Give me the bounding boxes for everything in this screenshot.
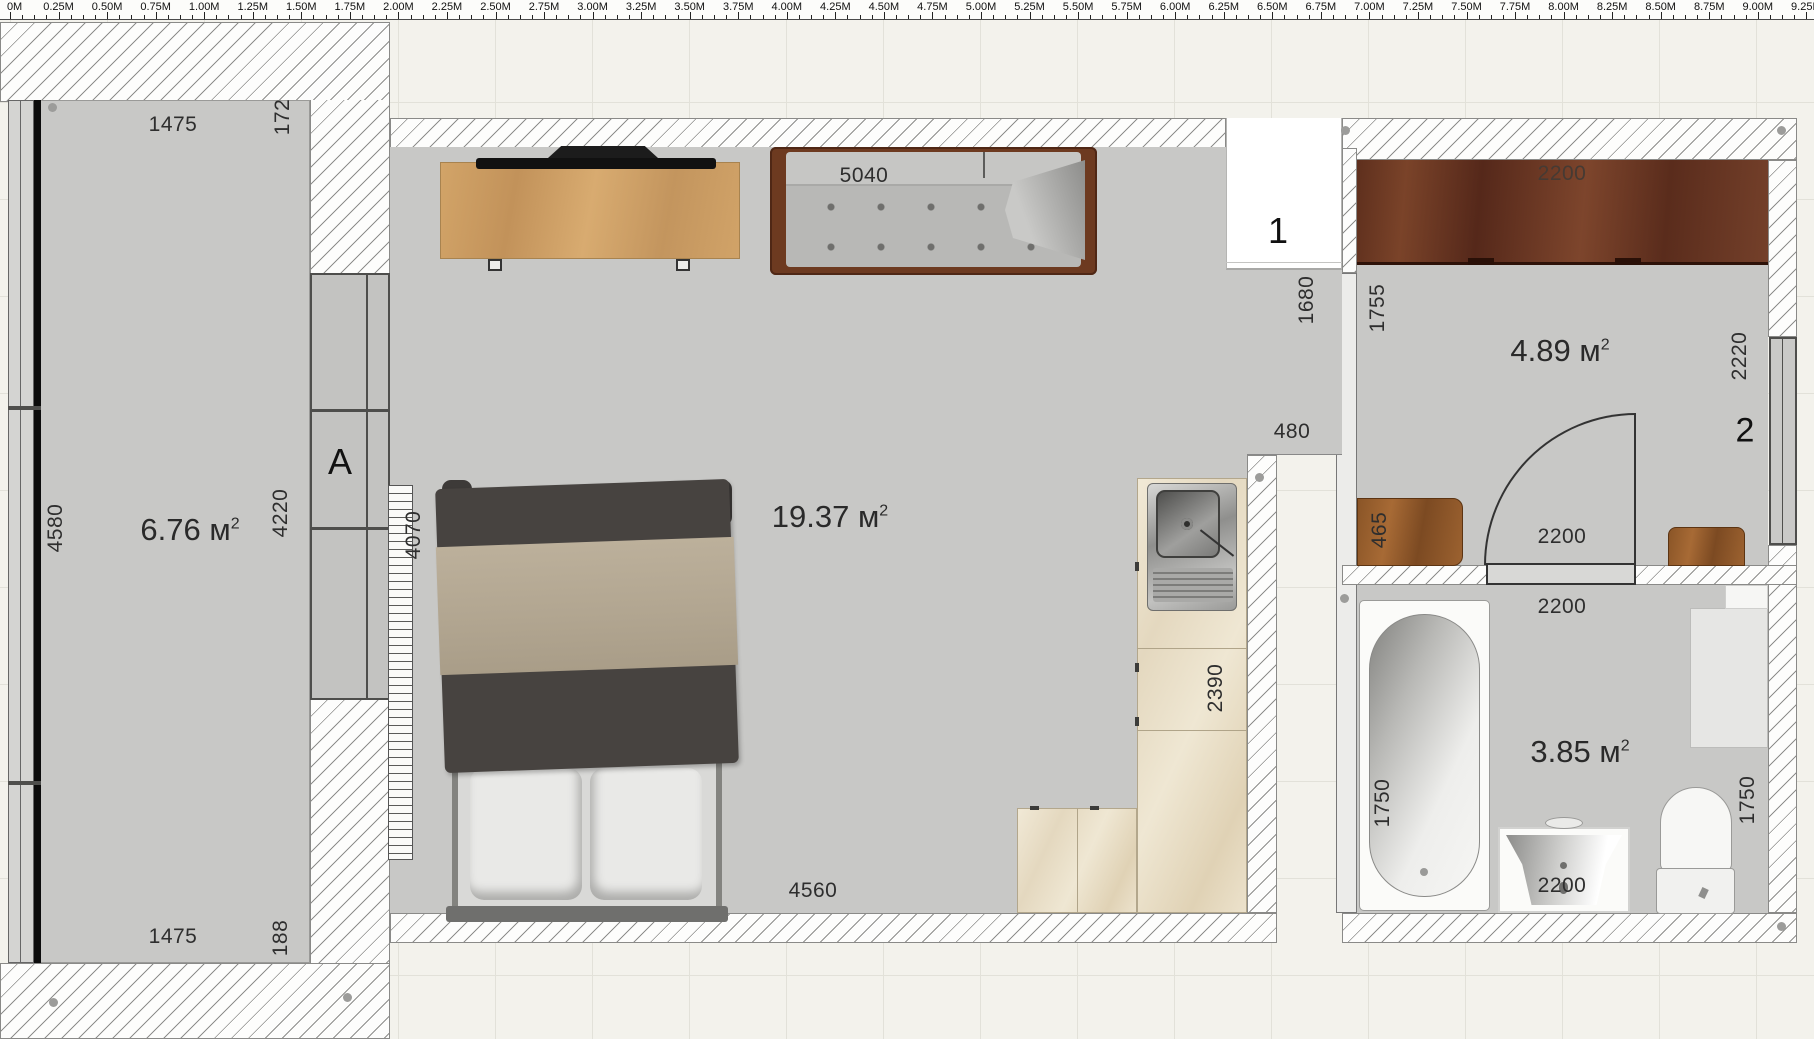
ruler-tick-major (10, 12, 11, 19)
ruler-tick-minor (131, 15, 132, 19)
kitchen-counter-seam (1137, 648, 1247, 649)
ruler-tick-minor (750, 15, 751, 19)
bed-throw (436, 537, 738, 675)
ruler-tick-major (59, 12, 60, 19)
wall-bottom-bath (1342, 913, 1797, 943)
ruler-tick-minor (71, 15, 72, 19)
wall-entry-side (1342, 148, 1357, 273)
ruler-tick-minor (1248, 15, 1249, 19)
ruler-tick-minor (629, 15, 630, 19)
ruler-tick-minor (1054, 15, 1055, 19)
dim-balcony-bottom-right: 188 (269, 920, 293, 957)
bathtub-drain (1420, 868, 1428, 876)
ruler-tick-minor (1042, 15, 1043, 19)
ruler-tick-major (1127, 12, 1128, 19)
ruler-tick-major (1612, 12, 1613, 19)
ruler-tick-minor (556, 15, 557, 19)
ruler-tick-minor (811, 15, 812, 19)
ruler-tick-major (884, 12, 885, 19)
bed[interactable] (438, 476, 738, 926)
ruler-tick-major (1369, 12, 1370, 19)
ruler-tick-major (1272, 12, 1273, 19)
ruler-tick-minor (775, 15, 776, 19)
wall-top-living (390, 118, 1226, 148)
ruler-tick-minor (277, 15, 278, 19)
kitchen-counter-seam (1077, 808, 1078, 913)
ruler-tick-minor (969, 15, 970, 19)
ruler-tick-minor (1115, 15, 1116, 19)
kitchen-counter-seam (1137, 730, 1247, 731)
ruler-tick-minor (1746, 15, 1747, 19)
dim-passage: 480 (1274, 420, 1311, 444)
entry-door-threshold-line (1226, 262, 1342, 263)
ruler-tick-minor (1539, 15, 1540, 19)
ruler-tick-minor (228, 15, 229, 19)
ruler-tick-minor (423, 15, 424, 19)
ruler-tick-minor (1236, 15, 1237, 19)
hall-door-leaf[interactable] (1634, 413, 1636, 566)
toilet-bowl[interactable] (1660, 787, 1732, 872)
ruler-tick-minor (313, 15, 314, 19)
ruler-tick-minor (763, 15, 764, 19)
ruler-tick-major (1709, 12, 1710, 19)
ruler-tick-minor (799, 15, 800, 19)
sofa-back-seam (983, 152, 985, 178)
dim-living-bottom: 4560 (789, 879, 838, 903)
cabinet-handle (1135, 562, 1139, 571)
ruler-tick-minor (180, 15, 181, 19)
ruler-tick-minor (1199, 15, 1200, 19)
ruler-tick-minor (83, 15, 84, 19)
wall-top-hall (1342, 118, 1797, 160)
balcony-window-sill-line (20, 100, 21, 963)
ruler-tick-minor (945, 15, 946, 19)
ruler-tick-minor (678, 15, 679, 19)
bathtub-basin (1369, 614, 1480, 897)
ruler-tick-minor (1673, 15, 1674, 19)
ruler-tick-minor (702, 15, 703, 19)
ruler-tick-minor (714, 15, 715, 19)
ruler-tick-minor (920, 15, 921, 19)
dim-balcony-top-right: 172 (271, 99, 295, 136)
ruler-tick-minor (1406, 15, 1407, 19)
ruler-tick-minor (1697, 15, 1698, 19)
ruler-tick-major (447, 12, 448, 19)
dim-entry-depth: 1680 (1295, 276, 1319, 325)
ruler-tick-minor (1442, 15, 1443, 19)
wall-right-upper (1768, 160, 1797, 337)
ruler-tick-minor (1721, 15, 1722, 19)
ruler-tick-major (1418, 12, 1419, 19)
ruler-tick-minor (1734, 15, 1735, 19)
ruler-tick-minor (726, 15, 727, 19)
door-marker-1: 1 (1268, 210, 1288, 252)
ruler-tick-minor (1163, 15, 1164, 19)
dim-radiator: 4070 (402, 511, 426, 560)
balcony-window-divider (8, 781, 41, 785)
ruler-tick-minor (872, 15, 873, 19)
bed-pillow (470, 768, 582, 900)
sink-drain (1181, 518, 1193, 530)
node-dot[interactable] (1255, 473, 1264, 482)
ruler-tick-minor (908, 15, 909, 19)
ruler-tick-minor (483, 15, 484, 19)
cabinet-handle (1030, 806, 1039, 810)
ruler-tick-major (1078, 12, 1079, 19)
wall-balcony-right (310, 100, 390, 275)
dim-washbasin: 2200 (1538, 874, 1587, 898)
sink-drainboard (1153, 568, 1233, 602)
window-column-mullion (366, 275, 368, 698)
ruler-tick-minor (34, 15, 35, 19)
hall-window-mullion (1782, 339, 1783, 543)
ruler-tick-minor (1576, 15, 1577, 19)
ruler-tick-major (301, 12, 302, 19)
window-marker-2: 2 (1736, 412, 1755, 451)
ruler-tick-minor (22, 15, 23, 19)
ruler-tick-minor (411, 15, 412, 19)
ruler-tick-minor (289, 15, 290, 19)
ruler-tick-minor (1357, 15, 1358, 19)
ruler-tick-minor (1102, 15, 1103, 19)
cabinet-handle (1135, 663, 1139, 672)
balcony-window-glass (34, 100, 41, 963)
ruler-tick-major (1224, 12, 1225, 19)
shower-step (1725, 585, 1768, 609)
node-dot[interactable] (343, 993, 352, 1002)
ruler-tick-minor (1636, 15, 1637, 19)
ruler-tick-minor (95, 15, 96, 19)
ruler-tick-major (835, 12, 836, 19)
node-dot[interactable] (48, 103, 57, 112)
ruler-tick-minor (1260, 15, 1261, 19)
ruler-tick-minor (896, 15, 897, 19)
ruler-tick-minor (1794, 15, 1795, 19)
window-marker-A: A (328, 441, 352, 483)
bed-pillow (590, 768, 702, 900)
balcony-window-sill[interactable] (8, 100, 34, 963)
window-column-divider (311, 409, 389, 412)
tv-stand[interactable] (440, 162, 740, 259)
ruler-tick-major (107, 12, 108, 19)
ruler-tick-major (1661, 12, 1662, 19)
ruler-tick-major (544, 12, 545, 19)
ruler-tick-major (787, 12, 788, 19)
dim-toilet-side: 1750 (1736, 776, 1760, 825)
ruler-tick-minor (1588, 15, 1589, 19)
ruler-tick-minor (508, 15, 509, 19)
ruler-tick-minor (459, 15, 460, 19)
shower-unit[interactable] (1690, 608, 1768, 748)
wardrobe-handle (1615, 258, 1641, 265)
ruler-tick-minor (532, 15, 533, 19)
ruler-tick-minor (362, 15, 363, 19)
ruler-tick-major (1564, 12, 1565, 19)
ruler-tick-minor (144, 15, 145, 19)
ruler-tick-major (204, 12, 205, 19)
ruler-tick-minor (192, 15, 193, 19)
tv-mount (548, 146, 658, 158)
washbasin-faucet (1545, 817, 1583, 829)
dim-hall-left: 1755 (1366, 284, 1390, 333)
ruler-tick-minor (1551, 15, 1552, 19)
ruler-tick-minor (265, 15, 266, 19)
ruler-tick-major (738, 12, 739, 19)
ruler-tick-major (1806, 12, 1807, 19)
ruler-tick-major (156, 12, 157, 19)
wardrobe-handle (1468, 258, 1494, 265)
node-dot[interactable] (1777, 922, 1786, 931)
cabinet-handle (1135, 717, 1139, 726)
ruler-tick-minor (847, 15, 848, 19)
ruler-label: 9.25M (1791, 1, 1814, 13)
ruler-tick-minor (168, 15, 169, 19)
ruler-tick-minor (1284, 15, 1285, 19)
ruler-tick-minor (1212, 15, 1213, 19)
ruler-tick-minor (1624, 15, 1625, 19)
hall-window[interactable] (1769, 337, 1797, 545)
ruler-tick-major (1175, 12, 1176, 19)
window-column-divider (311, 527, 389, 530)
living-area-label: 19.37 м2 (772, 499, 888, 535)
dim-bathtub: 1750 (1371, 779, 1395, 828)
dim-balcony-top: 1475 (149, 113, 198, 137)
window-column-A[interactable] (310, 273, 390, 700)
ruler-tick-minor (1527, 15, 1528, 19)
ruler-tick-minor (1187, 15, 1188, 19)
ruler-tick-major (932, 12, 933, 19)
ruler-tick-minor (617, 15, 618, 19)
ruler-tick-minor (1090, 15, 1091, 19)
ruler-tick-minor (1309, 15, 1310, 19)
ruler-tick-minor (860, 15, 861, 19)
node-dot[interactable] (1341, 126, 1350, 135)
tv-screen[interactable] (476, 158, 716, 169)
hall-door-threshold[interactable] (1486, 563, 1636, 585)
ruler-tick-minor (957, 15, 958, 19)
ruler-tick-major (350, 12, 351, 19)
ruler-tick-major (1030, 12, 1031, 19)
ruler-tick-minor (580, 15, 581, 19)
ruler-tick-minor (1430, 15, 1431, 19)
tv-stand-leg (488, 259, 502, 271)
wall-top-left-block (0, 22, 390, 102)
ruler-tick-minor (1685, 15, 1686, 19)
plan-canvas[interactable]: 0M0.25M0.50M0.75M1.00M1.25M1.50M1.75M2.0… (0, 0, 1814, 1039)
dim-hall-right: 2220 (1728, 332, 1752, 381)
wall-right-lower (1768, 545, 1797, 913)
ruler-tick-minor (1382, 15, 1383, 19)
ruler-tick-minor (605, 15, 606, 19)
ruler-tick-major (1467, 12, 1468, 19)
ruler-tick-minor (386, 15, 387, 19)
ruler-tick-minor (653, 15, 654, 19)
ruler-tick-minor (216, 15, 217, 19)
dim-balcony-bottom: 1475 (149, 925, 198, 949)
ruler-tick-minor (568, 15, 569, 19)
bed-footboard (446, 906, 728, 922)
ruler-tick-minor (1151, 15, 1152, 19)
ruler-tick-major (593, 12, 594, 19)
ruler-tick-minor (1600, 15, 1601, 19)
wall-bottom-left-block (0, 963, 390, 1039)
ruler-tick-minor (1005, 15, 1006, 19)
ruler-tick-major (1515, 12, 1516, 19)
ruler-tick-major (1758, 12, 1759, 19)
ruler-tick-major (641, 12, 642, 19)
horizontal-ruler: 0M0.25M0.50M0.75M1.00M1.25M1.50M1.75M2.0… (0, 0, 1814, 20)
ruler-tick-minor (326, 15, 327, 19)
ruler-tick-minor (993, 15, 994, 19)
wall-kitchen (1247, 455, 1277, 913)
node-dot[interactable] (1340, 594, 1349, 603)
dim-bath-top: 2200 (1538, 595, 1587, 619)
ruler-tick-major (496, 12, 497, 19)
ruler-tick-minor (374, 15, 375, 19)
hall-cabinet-right[interactable] (1668, 527, 1745, 566)
ruler-tick-minor (1479, 15, 1480, 19)
ruler-tick-minor (1394, 15, 1395, 19)
ruler-tick-major (398, 12, 399, 19)
ruler-tick-minor (1491, 15, 1492, 19)
dim-sofa: 5040 (840, 164, 889, 188)
balcony-window-divider (8, 406, 41, 410)
ruler-tick-minor (1345, 15, 1346, 19)
dim-hall-door: 2200 (1538, 525, 1587, 549)
cabinet-handle (1090, 806, 1099, 810)
ruler-tick-minor (823, 15, 824, 19)
ruler-tick-minor (1017, 15, 1018, 19)
ruler-tick-minor (1770, 15, 1771, 19)
ruler-tick-major (1321, 12, 1322, 19)
ruler-tick-minor (338, 15, 339, 19)
ruler-tick-minor (1066, 15, 1067, 19)
tv-stand-leg (676, 259, 690, 271)
ruler-tick-minor (435, 15, 436, 19)
ruler-tick-major (690, 12, 691, 19)
dim-wardrobe: 2200 (1538, 162, 1587, 186)
ruler-tick-minor (1503, 15, 1504, 19)
dim-balcony-left: 4580 (44, 504, 68, 553)
bath-area-label: 3.85 м2 (1530, 734, 1629, 770)
wall-below-window-column (310, 700, 390, 964)
ruler-tick-major (981, 12, 982, 19)
ruler-tick-minor (1782, 15, 1783, 19)
ruler-tick-minor (1454, 15, 1455, 19)
ruler-tick-minor (1139, 15, 1140, 19)
balcony-area-label: 6.76 м2 (140, 512, 239, 548)
ruler-tick-minor (1649, 15, 1650, 19)
toilet-tank (1656, 868, 1735, 914)
ruler-tick-minor (665, 15, 666, 19)
ruler-tick-minor (471, 15, 472, 19)
hall-area-label: 4.89 м2 (1510, 333, 1609, 369)
ruler-tick-minor (46, 15, 47, 19)
ruler-tick-minor (1333, 15, 1334, 19)
ruler-tick-major (253, 12, 254, 19)
ruler-tick-minor (241, 15, 242, 19)
ruler-tick-minor (119, 15, 120, 19)
ruler-tick-minor (1297, 15, 1298, 19)
dim-counter: 2390 (1204, 664, 1228, 713)
node-dot[interactable] (1777, 126, 1786, 135)
washbasin-drain (1560, 862, 1567, 869)
node-dot[interactable] (49, 998, 58, 1007)
dim-hall-cabinet: 465 (1368, 512, 1392, 549)
dim-balcony-right: 4220 (269, 489, 293, 538)
ruler-tick-minor (520, 15, 521, 19)
